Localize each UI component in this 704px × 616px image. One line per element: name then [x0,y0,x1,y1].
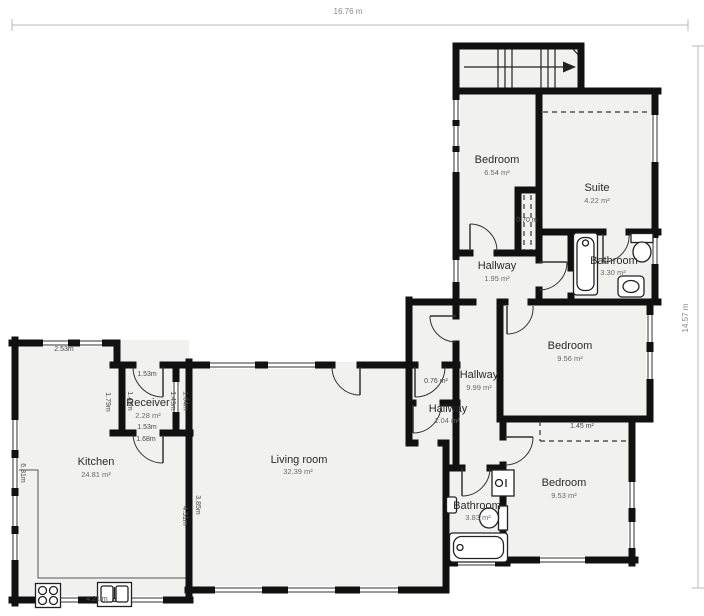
small-closet-label: 0.76 m² [424,378,448,385]
window [360,586,398,594]
window [452,126,460,146]
dim-kitchen-door: 1.68m [136,436,156,443]
window [646,352,654,379]
closet-depth-label: 0.70 m [516,217,538,224]
room-label-bedroom-bottom: Bedroom [542,477,587,489]
room-label-kitchen: Kitchen [78,456,115,468]
room-area-bedroom-mid: 9.56 m² [557,354,583,363]
window [210,361,255,369]
floor-plan-page: 16.76 m 14.57 m [0,0,704,616]
window [628,522,636,548]
stove [36,584,61,608]
wardrobe-label: 1.45 m² [570,423,594,430]
room-area-living-room: 32.39 m² [283,467,313,476]
bathtub [450,533,508,562]
window [11,496,19,526]
room-area-kitchen: 24.81 m² [81,470,111,479]
window [268,361,315,369]
room-area-hallway-top: 1.95 m² [484,274,510,283]
right-ruler-label: 14.57 m [681,303,690,332]
room-label-bedroom-top: Bedroom [475,154,520,166]
room-fills [12,46,655,603]
window [452,152,460,172]
sink [618,276,644,297]
room-area-bedroom-top: 6.54 m² [484,168,510,177]
window [646,315,654,342]
dim-kitchen-left: 6.81m [19,463,26,483]
window [452,260,460,282]
room-label-suite: Suite [584,182,609,194]
dim-shaft: 1.64m [182,391,189,411]
window [651,115,659,162]
dim-kitchen-step: 1.79m [104,392,111,412]
dim-receiver-top: 1.53m [137,371,157,378]
dim-kitchen-top: 2.53m [54,346,74,353]
room-area-suite: 4.22 m² [584,196,610,205]
dim-receiver-bottom: 1.53m [137,424,157,431]
window [628,482,636,508]
room-label-bathroom-bottom: Bathroom [453,500,501,512]
floor-plan-canvas: 16.76 m 14.57 m [0,0,704,616]
window [215,586,262,594]
water-heater [492,470,514,496]
room-label-living-room: Living room [271,454,328,466]
window [540,556,585,564]
room-area-bedroom-bottom: 9.53 m² [551,491,577,500]
window [11,420,19,450]
dim-kitchen-bottom: 4.21 m [86,596,108,603]
dim-living-left: 3.85m [194,495,201,515]
window [11,458,19,488]
room-label-bedroom-mid: Bedroom [548,340,593,352]
window [452,100,460,120]
room-label-hallway-main: Hallway [460,369,499,381]
right-ruler [692,46,704,588]
dim-receiver-right: 1.49m [169,391,176,411]
room-label-hallway-small: Hallway [429,403,468,415]
room-area-hallway-small: 1.04 m² [434,416,460,425]
top-ruler [12,19,688,31]
room-area-hallway-main: 9.99 m² [466,383,492,392]
room-area-bathroom-bottom: 3.83 m² [465,513,491,522]
window [11,534,19,560]
window [80,339,102,347]
room-label-hallway-top: Hallway [478,260,517,272]
room-area-receiver: 2.28 m² [135,411,161,420]
room-area-bathroom-top: 3.30 m² [600,268,626,277]
room-label-bathroom-top: Bathroom [590,255,638,267]
dim-receiver-left: 1.49m [126,391,133,411]
dim-kitchen-right: 4.51m [181,506,188,526]
window [288,586,335,594]
top-ruler-label: 16.76 m [334,7,363,16]
